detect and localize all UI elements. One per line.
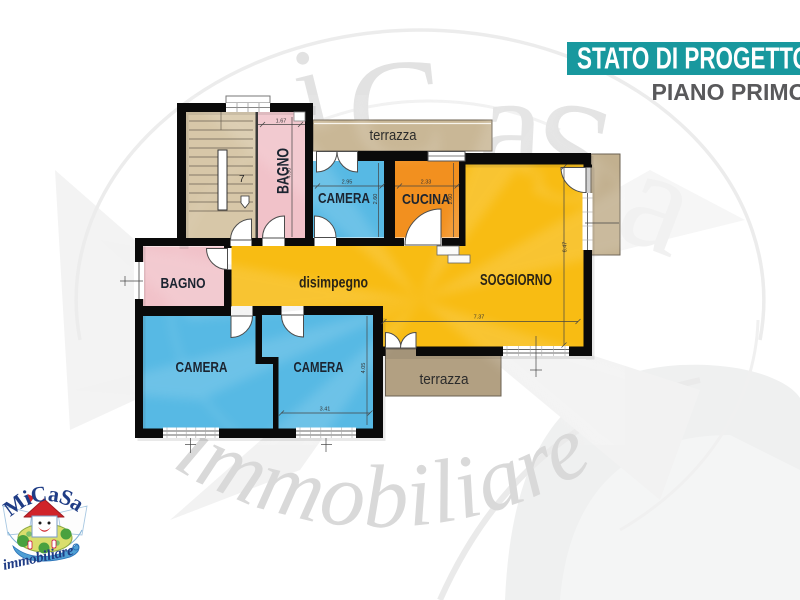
svg-text:terrazza: terrazza	[420, 371, 470, 388]
svg-text:terrazza: terrazza	[370, 127, 418, 144]
svg-text:BAGNO: BAGNO	[274, 148, 293, 194]
svg-text:SOGGIORNO: SOGGIORNO	[480, 272, 552, 289]
svg-text:CAMERA: CAMERA	[318, 190, 370, 207]
svg-text:PIANO PRIMO: PIANO PRIMO	[652, 79, 800, 105]
svg-text:CAMERA: CAMERA	[176, 359, 228, 376]
svg-text:7: 7	[239, 174, 245, 185]
svg-text:BAGNO: BAGNO	[161, 275, 206, 292]
svg-text:2.95: 2.95	[342, 180, 353, 186]
svg-text:CUCINA: CUCINA	[402, 191, 450, 208]
svg-text:6.47: 6.47	[563, 242, 569, 253]
svg-text:STATO DI PROGETTO: STATO DI PROGETTO	[577, 42, 800, 76]
svg-text:7.37: 7.37	[474, 315, 485, 321]
svg-text:2.33: 2.33	[421, 180, 432, 186]
svg-text:1.67: 1.67	[276, 119, 287, 125]
svg-text:disimpegno: disimpegno	[299, 275, 368, 292]
svg-text:4.05: 4.05	[361, 363, 367, 374]
svg-text:3.41: 3.41	[320, 407, 331, 413]
svg-text:CAMERA: CAMERA	[294, 359, 344, 376]
svg-text:2.60: 2.60	[373, 194, 379, 205]
